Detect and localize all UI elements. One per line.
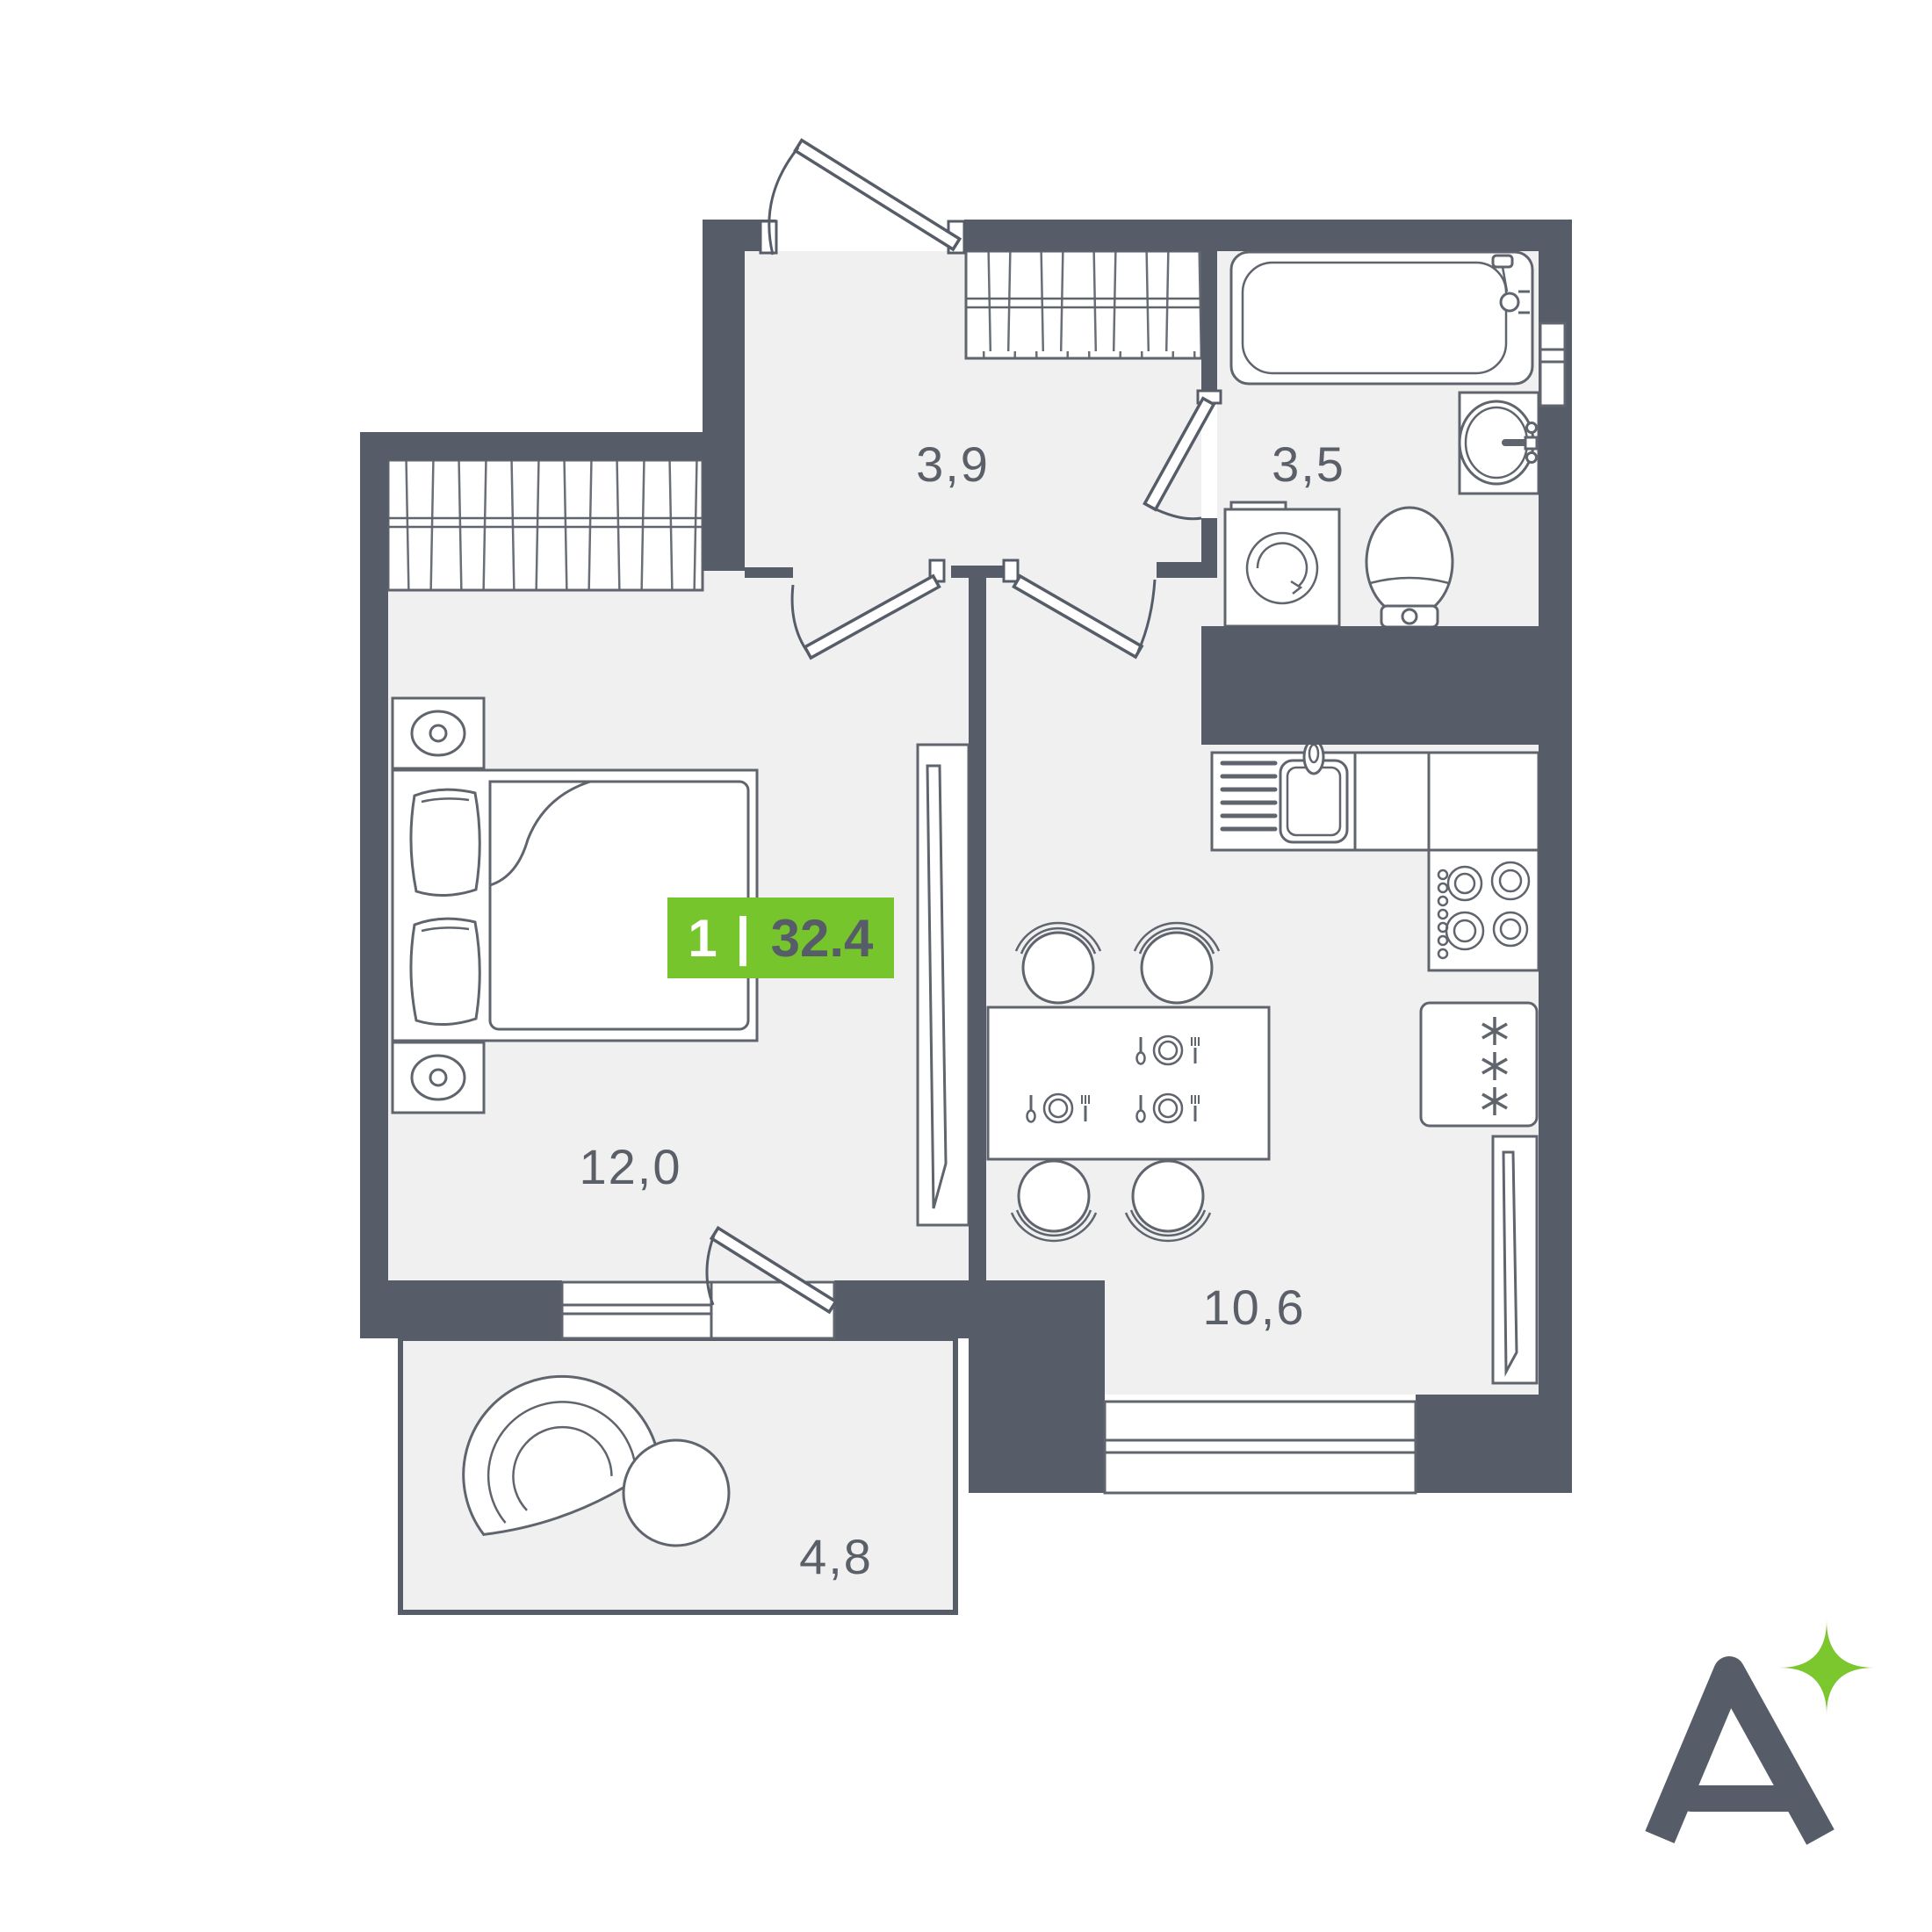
- area-label-bedroom: 12,0: [580, 1139, 682, 1194]
- wall-top: [964, 220, 1572, 251]
- floorplan-svg: 3,9 3,5 12,0 10,6 4,8 1 | 32.4: [0, 0, 1932, 1932]
- pillow-icon: [411, 919, 479, 1024]
- pillow-icon: [411, 789, 479, 895]
- wall-bathroom-left-top: [1201, 251, 1217, 391]
- bath-mixer-icon: [1501, 293, 1518, 311]
- logo-sparkle-icon: [1779, 1620, 1874, 1715]
- coffee-table-icon: [624, 1440, 729, 1546]
- kitchen-window: [1105, 1402, 1416, 1493]
- wall-bathroom-left-bottom: [1201, 518, 1217, 578]
- wall-bedroom-bottom-right: [834, 1280, 969, 1338]
- bedroom-wardrobe-hatch: [388, 460, 703, 590]
- wall-hallway-left: [703, 220, 745, 571]
- wall-bedroom-left: [360, 432, 388, 1338]
- wall-bedroom-top: [360, 432, 703, 460]
- hallway-wardrobe-hatch: [966, 251, 1201, 358]
- shaft-niche: [1540, 323, 1565, 406]
- wall-kitchen-bottom-right: [1416, 1395, 1539, 1493]
- stove-icon: [1429, 850, 1539, 970]
- badge-divider: |: [736, 907, 751, 967]
- area-label-hallway: 3,9: [916, 436, 990, 492]
- badge-total-area: 32.4: [771, 909, 874, 968]
- wall-door-stub: [951, 566, 1004, 578]
- wall-right: [1539, 220, 1572, 1493]
- mirror-cabinet-icon: [918, 745, 969, 1225]
- kitchen-sink-icon: [1212, 740, 1355, 850]
- nightstand-top-icon: [393, 698, 484, 768]
- countertop-icon: [1355, 753, 1429, 850]
- bathtub-icon: [1231, 252, 1532, 384]
- bedroom-window: [562, 1282, 711, 1338]
- nightstand-bottom-icon: [393, 1042, 484, 1113]
- badge-rooms-count: 1: [688, 909, 717, 968]
- wall-corner-stub: [1157, 562, 1201, 578]
- developer-logo: [1660, 1620, 1874, 1837]
- wall-bedroom-kitchen: [969, 578, 986, 1280]
- fridge-icon: [1421, 1003, 1537, 1126]
- area-label-bathroom: 3,5: [1272, 436, 1345, 492]
- entry-door-leaf: [796, 141, 960, 249]
- wall-hall-bottom: [745, 567, 793, 578]
- floorplan-page: 3,9 3,5 12,0 10,6 4,8 1 | 32.4: [0, 0, 1932, 1932]
- wall-bedroom-bottom-left: [360, 1280, 562, 1338]
- door-jamb: [1004, 560, 1018, 581]
- area-label-kitchen: 10,6: [1203, 1280, 1306, 1335]
- logo-letter-a: [1660, 1672, 1820, 1837]
- apartment-badge: 1 | 32.4: [667, 898, 894, 978]
- washing-machine-icon: [1225, 502, 1339, 626]
- area-label-balcony: 4,8: [799, 1529, 873, 1584]
- countertop-icon: [1429, 753, 1539, 850]
- wall-kitchen-bottom-left: [969, 1280, 1105, 1493]
- washbasin-icon: [1460, 393, 1539, 494]
- wall-bathroom-kitchen-band: [1201, 626, 1572, 745]
- radiator-icon: [1493, 1136, 1537, 1383]
- dining-table-icon: [988, 1007, 1269, 1159]
